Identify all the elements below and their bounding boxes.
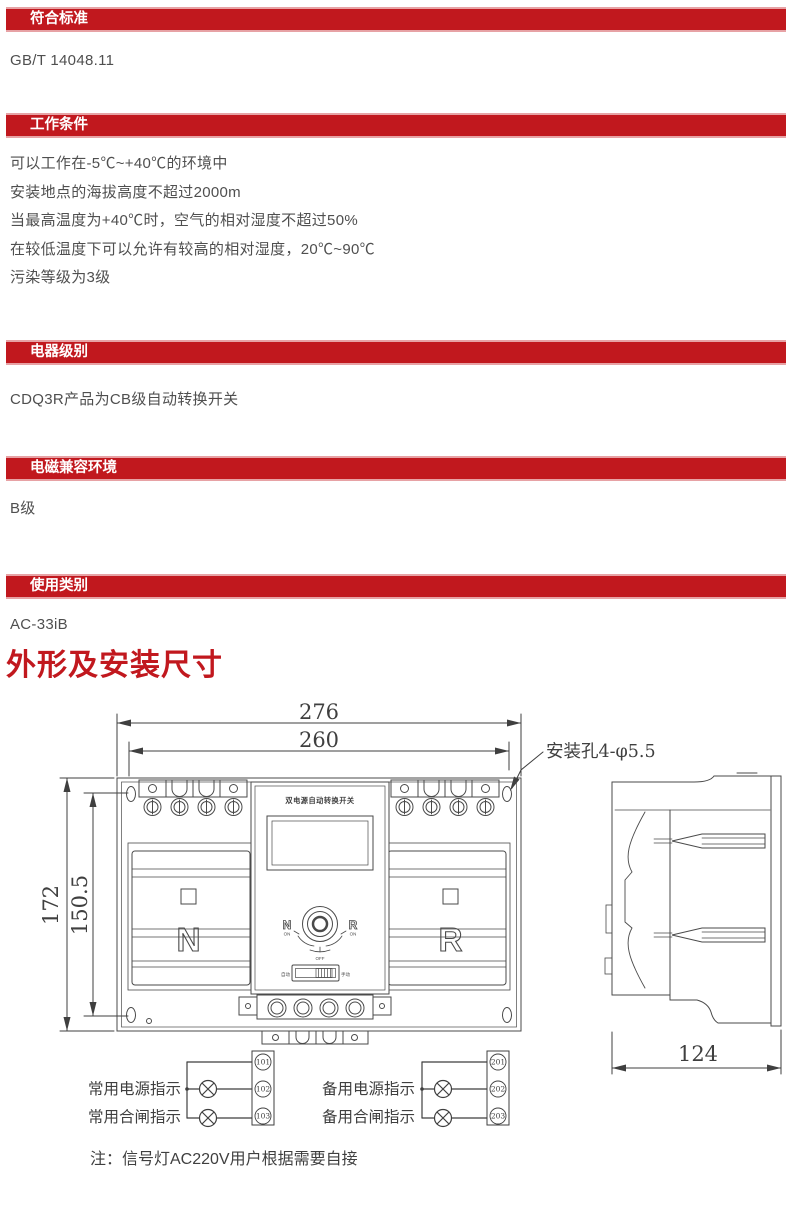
terminal-blade-top: [654, 834, 765, 848]
knob-label-off: OFF: [316, 956, 325, 961]
section-bar-device-class: 电器级别: [6, 340, 786, 365]
indicator-label: 备用合闸指示: [322, 1108, 415, 1126]
section-bar-emc: 电磁兼容环境: [6, 456, 786, 481]
section-bar-standards: 符合标准: [6, 7, 786, 32]
working-condition-line: 可以工作在-5℃~+40℃的环境中: [10, 150, 375, 179]
lamp-icon: [200, 1081, 217, 1098]
indicator-label: 备用电源指示: [322, 1080, 415, 1098]
knob-label-n: N: [283, 918, 292, 932]
terminal-number: 103: [256, 1112, 271, 1121]
terminal-number: 202: [491, 1085, 506, 1094]
section-bar-utilization-category: 使用类别: [6, 574, 786, 599]
indicator-label: 常用电源指示: [88, 1080, 181, 1098]
mode-switch-label-auto: 自动: [281, 971, 290, 978]
datasheet-page: 符合标准 GB/T 14048.11 工作条件 可以工作在-5℃~+40℃的环境…: [0, 0, 786, 1218]
left-pole-letter: N: [177, 921, 201, 958]
knob-sublabel-r-on: ON: [350, 932, 357, 937]
controller-panel: [251, 782, 389, 994]
dimension-lines: [60, 714, 781, 1074]
terminal-number: 102: [256, 1085, 271, 1094]
emc-text: B级: [10, 497, 36, 518]
wiring-note: 注：信号灯AC220V用户根据需要自接: [90, 1150, 358, 1168]
dim-width-holes: 260: [299, 728, 339, 752]
knob-sublabel-n-on: ON: [284, 932, 291, 937]
product-title-on-panel: 双电源自动转换开关: [285, 796, 355, 805]
lamp-icon: [435, 1081, 452, 1098]
top-terminals-left: [139, 780, 247, 816]
bottom-terminals: [239, 995, 391, 1044]
working-condition-line: 安装地点的海拔高度不超过2000m: [10, 179, 375, 208]
side-view: [605, 773, 781, 1026]
lamp-icon: [435, 1110, 452, 1127]
mounting-hole-label: 安装孔4-φ5.5: [546, 742, 656, 762]
lamp-icon: [200, 1110, 217, 1127]
dim-height-outer: 172: [39, 885, 63, 925]
working-condition-line: 污染等级为3级: [10, 264, 375, 293]
drawing-section-title: 外形及安装尺寸: [6, 640, 223, 684]
working-condition-line: 在较低温度下可以允许有较高的相对湿度，20℃~90℃: [10, 236, 375, 265]
standards-text: GB/T 14048.11: [10, 52, 114, 69]
working-conditions-text: 可以工作在-5℃~+40℃的环境中 安装地点的海拔高度不超过2000m 当最高温…: [10, 150, 375, 293]
breaker-right: [388, 851, 506, 985]
terminal-number: 201: [491, 1058, 505, 1067]
utilization-category-text: AC-33iB: [10, 616, 68, 633]
dim-depth: 124: [678, 1042, 718, 1066]
device-class-text: CDQ3R产品为CB级自动转换开关: [10, 388, 238, 409]
front-view: [117, 778, 521, 1044]
mode-switch-label-manual: 手动: [341, 971, 350, 978]
dimension-drawing: 276 260 172 150.5 安装孔4-φ5.5 124: [0, 690, 786, 1218]
indicator-label: 常用合闸指示: [88, 1108, 181, 1126]
dim-height-holes: 150.5: [68, 875, 92, 935]
knob-label-r: R: [349, 918, 358, 932]
working-condition-line: 当最高温度为+40℃时，空气的相对湿度不超过50%: [10, 207, 375, 236]
top-terminals-right: [391, 780, 499, 816]
breaker-left: [132, 851, 250, 985]
terminal-number: 203: [491, 1112, 506, 1121]
section-bar-working-conditions: 工作条件: [6, 113, 786, 138]
dim-width-outer: 276: [299, 700, 339, 724]
right-pole-letter: R: [439, 921, 463, 958]
terminal-blade-bottom: [654, 928, 765, 942]
terminal-number: 101: [256, 1058, 270, 1067]
